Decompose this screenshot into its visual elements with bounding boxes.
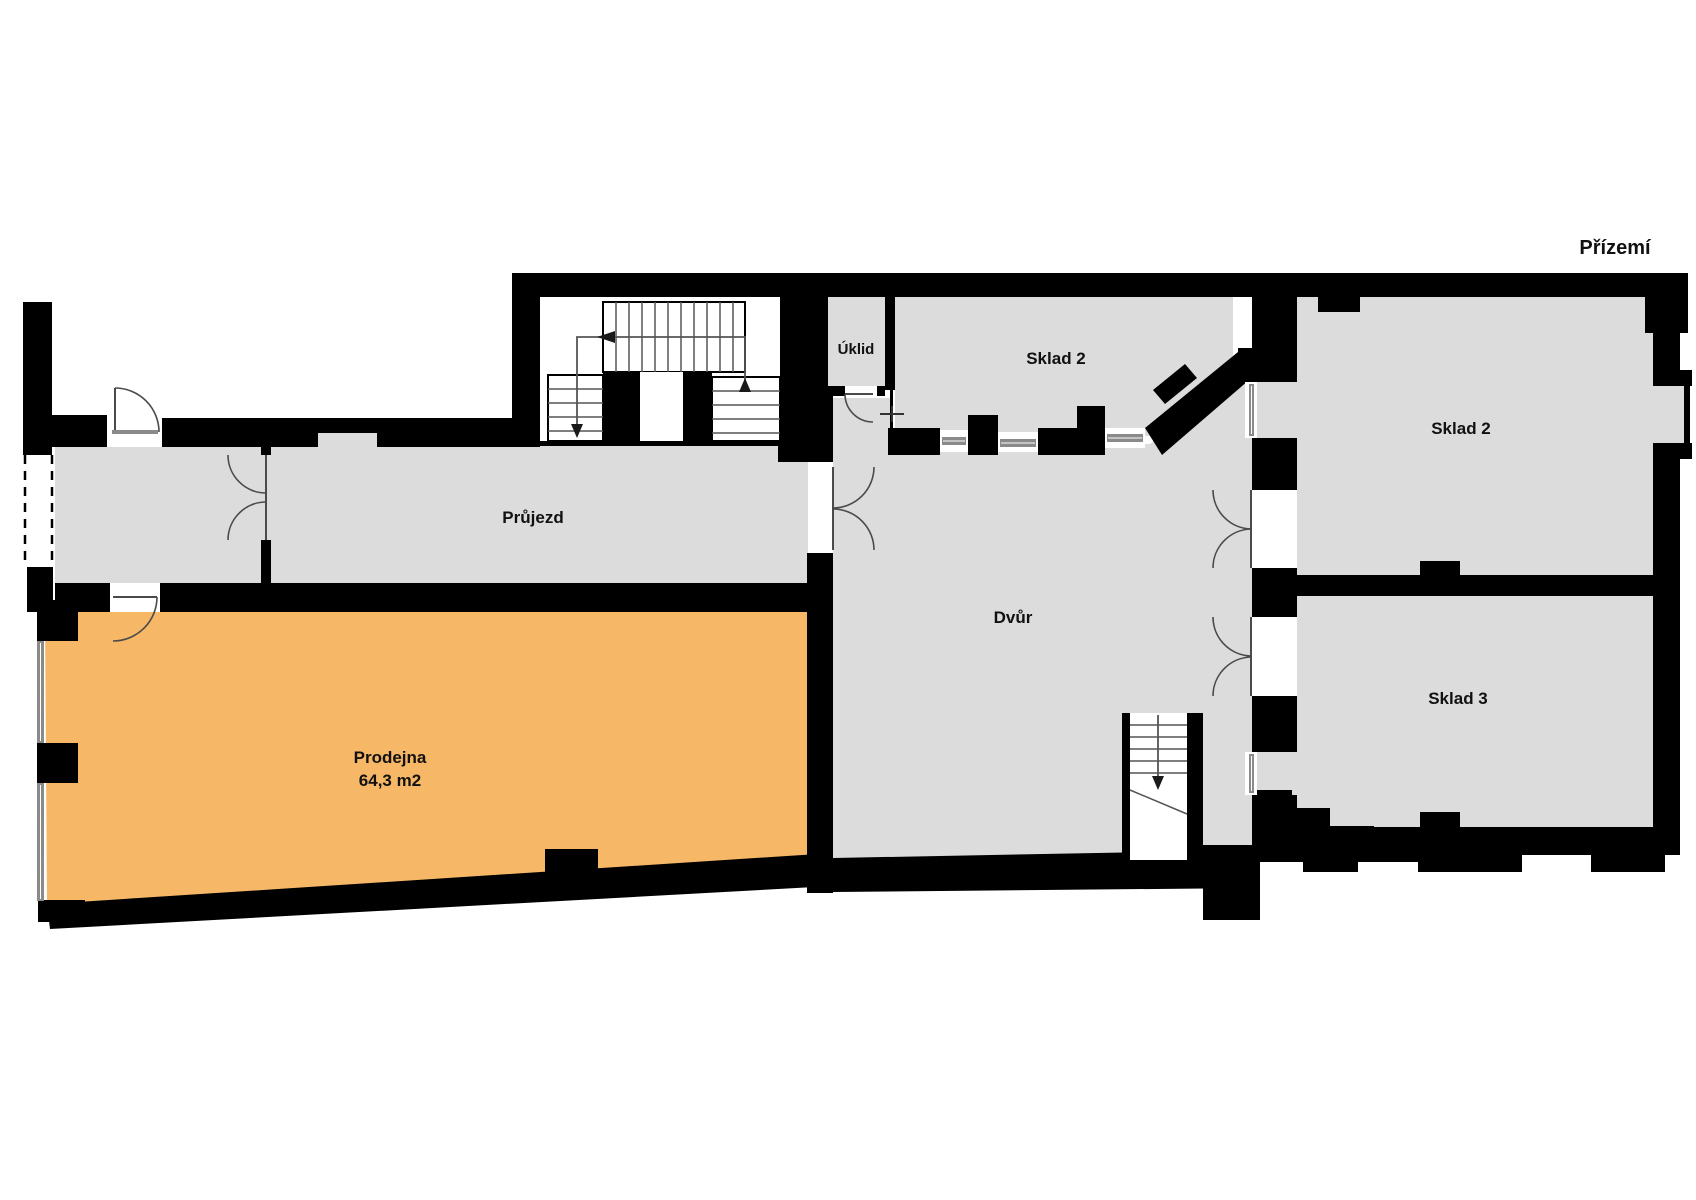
- floor-plan-page: Přízemí Průjezd Úklid Sklad 2 Sklad 2 Sk…: [0, 0, 1696, 1200]
- window: [1245, 752, 1257, 795]
- room-label-sklad2-top: Sklad 2: [1026, 349, 1086, 368]
- room-label-prodejna: Prodejna: [354, 748, 427, 767]
- window: [940, 430, 968, 452]
- room-sklad3: [1297, 596, 1653, 827]
- floor-plan-drawing: Přízemí Průjezd Úklid Sklad 2 Sklad 2 Sk…: [0, 0, 1696, 1200]
- entry-opening-dashed: [23, 455, 53, 567]
- window: [1245, 382, 1257, 438]
- staircase-dvur: [1122, 713, 1203, 860]
- room-label-sklad2-right: Sklad 2: [1431, 419, 1491, 438]
- bay-window-recess: [1653, 386, 1686, 443]
- staircase-top: [548, 302, 780, 441]
- room-prujezd: [55, 445, 808, 583]
- room-label-sklad3: Sklad 3: [1428, 689, 1488, 708]
- door-opening-dvur-sklad2: [1252, 490, 1297, 568]
- window-reveal-upper: [1256, 382, 1297, 438]
- window: [998, 432, 1038, 452]
- room-label-prujezd: Průjezd: [502, 508, 563, 527]
- door-opening-dvur-sklad3: [1252, 617, 1297, 696]
- window-reveal-lower: [1256, 752, 1297, 795]
- wall-niche: [318, 433, 377, 447]
- room-label-uklid: Úklid: [838, 340, 875, 358]
- door-opening-prujezd-dvur: [808, 462, 833, 553]
- page-title: Přízemí: [1579, 237, 1652, 259]
- room-area-prodejna: 64,3 m2: [359, 771, 421, 790]
- room-label-dvur: Dvůr: [994, 608, 1033, 627]
- stair-landing: [640, 372, 683, 441]
- window: [1105, 428, 1145, 448]
